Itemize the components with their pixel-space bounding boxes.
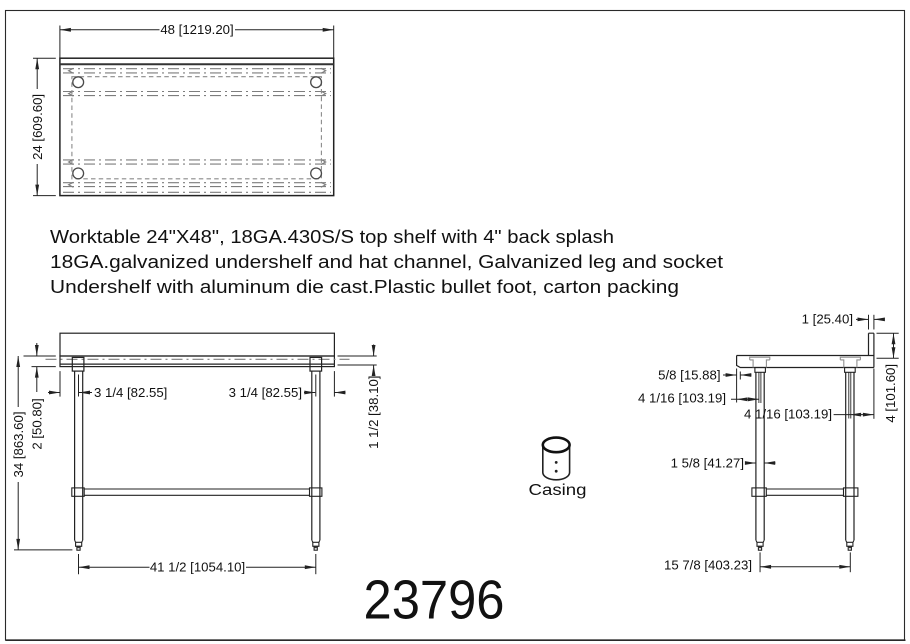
svg-text:24 [609.60]: 24 [609.60]: [30, 94, 45, 160]
svg-text:1 [25.40]: 1 [25.40]: [802, 312, 853, 327]
svg-text:34 [863.60]: 34 [863.60]: [11, 412, 26, 478]
svg-text:41 1/2 [1054.10]: 41 1/2 [1054.10]: [150, 560, 245, 575]
svg-text:48 [1219.20]: 48 [1219.20]: [160, 22, 233, 37]
svg-text:4 [101.60]: 4 [101.60]: [883, 364, 898, 423]
svg-text:3 1/4 [82.55]: 3 1/4 [82.55]: [94, 385, 167, 400]
svg-text:15 7/8 [403.23]: 15 7/8 [403.23]: [664, 558, 752, 573]
svg-text:Casing: Casing: [529, 482, 587, 499]
svg-text:1 5/8 [41.27]: 1 5/8 [41.27]: [671, 455, 744, 470]
svg-text:23796: 23796: [364, 569, 505, 631]
svg-text:1 1/2 [38.10]: 1 1/2 [38.10]: [366, 376, 381, 449]
svg-text:5/8 [15.88]: 5/8 [15.88]: [658, 367, 720, 382]
svg-text:Undershelf with aluminum die c: Undershelf with aluminum die cast.Plasti…: [50, 277, 679, 297]
svg-text:3 1/4 [82.55]: 3 1/4 [82.55]: [229, 385, 302, 400]
svg-text:18GA.galvanized undershelf and: 18GA.galvanized undershelf and hat chann…: [50, 252, 723, 272]
svg-text:Worktable 24"X48", 18GA.430S/S: Worktable 24"X48", 18GA.430S/S top shelf…: [50, 227, 614, 247]
svg-text:2 [50.80]: 2 [50.80]: [29, 398, 44, 449]
svg-text:4 1/16 [103.19]: 4 1/16 [103.19]: [638, 391, 726, 406]
svg-text:4 1/16 [103.19]: 4 1/16 [103.19]: [744, 406, 832, 421]
